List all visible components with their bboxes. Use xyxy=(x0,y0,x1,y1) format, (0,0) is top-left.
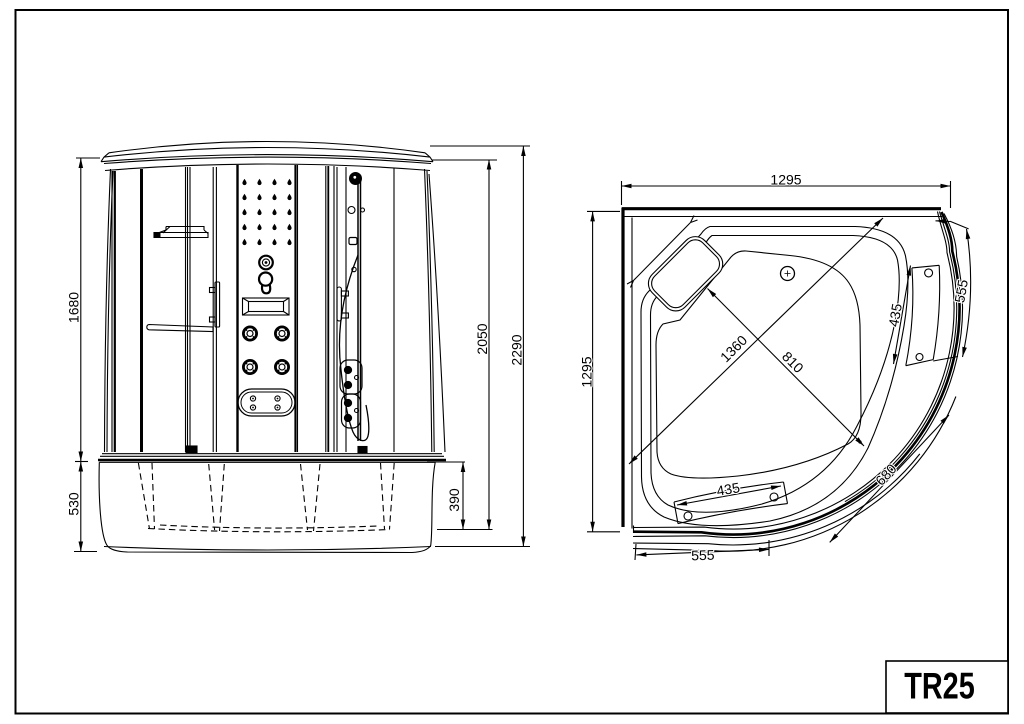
svg-text:1295: 1295 xyxy=(770,172,801,188)
svg-text:2050: 2050 xyxy=(474,323,490,354)
svg-text:TR25: TR25 xyxy=(904,666,975,707)
svg-text:530: 530 xyxy=(66,492,82,516)
svg-text:1295: 1295 xyxy=(579,356,595,387)
svg-text:555: 555 xyxy=(691,547,715,564)
svg-text:1680: 1680 xyxy=(66,292,82,323)
svg-text:810: 810 xyxy=(779,348,807,376)
svg-text:555: 555 xyxy=(951,278,971,304)
svg-text:390: 390 xyxy=(446,488,462,512)
svg-text:435: 435 xyxy=(715,479,741,499)
svg-text:1360: 1360 xyxy=(717,332,750,365)
svg-text:2290: 2290 xyxy=(509,334,525,365)
svg-text:435: 435 xyxy=(885,302,905,328)
